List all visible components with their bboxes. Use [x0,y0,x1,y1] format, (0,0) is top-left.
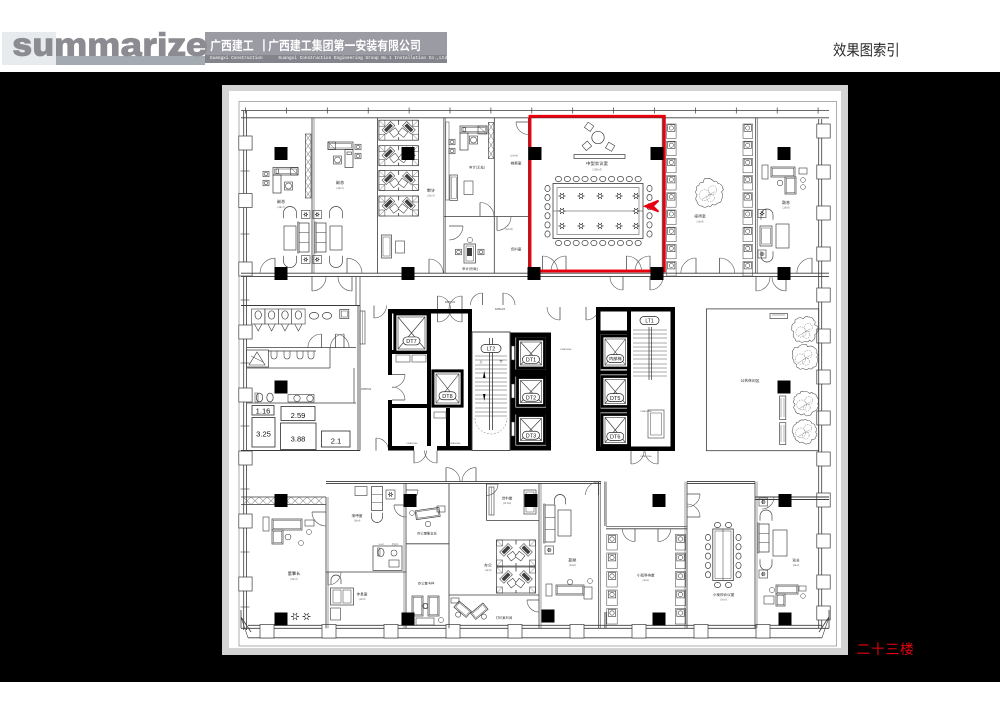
svg-text:DT5: DT5 [610,396,620,402]
svg-text:3.25: 3.25 [256,430,271,439]
svg-text:3.88: 3.88 [291,435,306,444]
svg-text:2.1: 2.1 [331,437,342,446]
svg-text:FWB1024b: FWB1024b [450,443,462,445]
svg-text:DT7: DT7 [406,339,416,345]
svg-text:FWB1534: FWB1534 [361,389,372,391]
svg-text:FWB1534: FWB1534 [445,302,456,304]
svg-text:DT6: DT6 [610,434,620,440]
svg-text:LT1: LT1 [645,319,653,325]
svg-text:FWB1224b: FWB1224b [641,456,653,458]
svg-text:2.59: 2.59 [291,411,306,420]
svg-text:DT8: DT8 [442,394,452,400]
svg-text:DT2: DT2 [526,395,536,401]
svg-text:FWB1224: FWB1224 [495,309,506,311]
svg-text:FWB1324b: FWB1324b [561,349,573,351]
svg-text:LT2: LT2 [487,347,495,353]
svg-text:DT3: DT3 [526,433,536,439]
svg-text:1.16: 1.16 [256,407,271,416]
svg-text:FWB1024b: FWB1024b [407,443,419,445]
svg-text:DT1: DT1 [526,358,536,364]
svg-text:FWB1224b: FWB1224b [641,411,653,413]
